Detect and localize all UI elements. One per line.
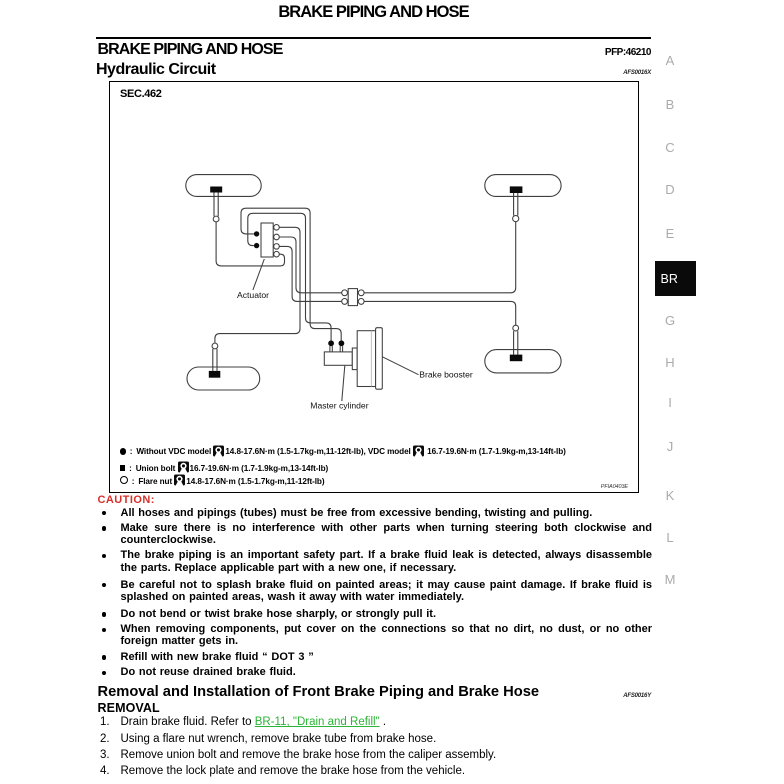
svg-text:Actuator: Actuator [237, 290, 269, 300]
svg-text:Brake booster: Brake booster [419, 369, 473, 379]
svg-text:Master cylinder: Master cylinder [310, 400, 368, 410]
